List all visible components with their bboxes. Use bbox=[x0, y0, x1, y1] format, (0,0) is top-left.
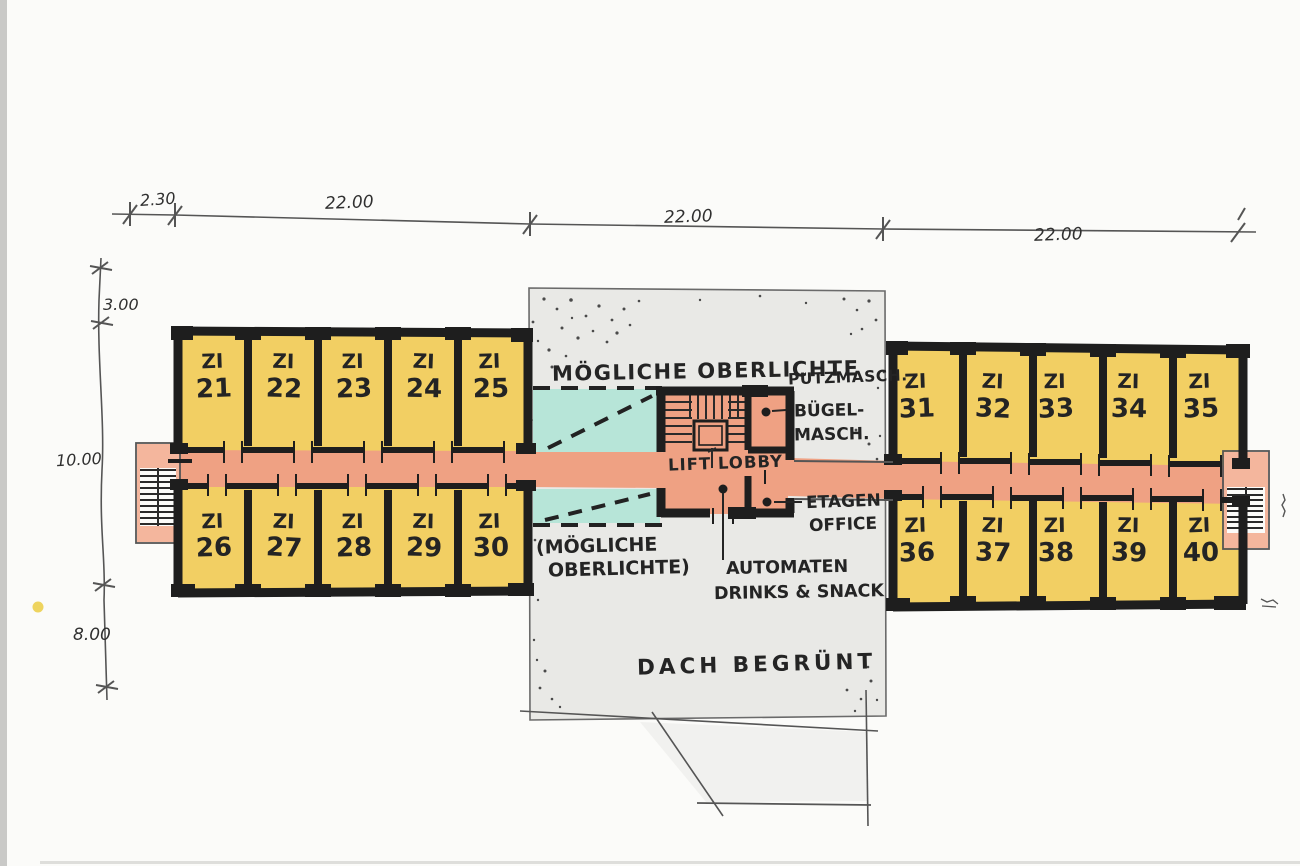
room-number: 36 bbox=[898, 537, 935, 568]
room-number: 29 bbox=[405, 532, 442, 563]
label-etagen-office-1: ETAGEN bbox=[806, 491, 881, 514]
room-number: 26 bbox=[195, 532, 232, 563]
yellow-mark bbox=[33, 602, 44, 613]
room-number: 27 bbox=[265, 532, 303, 564]
label-oberlichte-bottom-1: (MÖGLICHE bbox=[536, 532, 658, 559]
buegelmasch-leader bbox=[772, 410, 786, 411]
label-lift-lobby: LIFT LOBBY bbox=[668, 452, 784, 475]
room-prefix: ZI bbox=[272, 349, 294, 373]
etagen-office-dot bbox=[763, 498, 772, 507]
floor-plan-sketch: 2.30 22.00 22.00 22.00 3.00 10.00 8.00 Z… bbox=[0, 0, 1300, 866]
room-prefix: ZI bbox=[1117, 513, 1139, 537]
room-number: 28 bbox=[335, 532, 372, 563]
room-number: 35 bbox=[1182, 393, 1219, 424]
room-prefix: ZI bbox=[341, 509, 363, 533]
label-etagen-office-2: OFFICE bbox=[809, 514, 878, 536]
room-number: 38 bbox=[1038, 538, 1075, 569]
room-number: 30 bbox=[473, 533, 510, 564]
room-prefix: ZI bbox=[1043, 369, 1065, 393]
margin-scribble-2 bbox=[1261, 599, 1278, 607]
dim-2-30: 2.30 bbox=[139, 189, 176, 210]
floor-plan-page: 2.30 22.00 22.00 22.00 3.00 10.00 8.00 Z… bbox=[0, 0, 1300, 866]
label-automaten-2: DRINKS & SNACK bbox=[714, 581, 886, 604]
room-prefix: ZI bbox=[272, 509, 295, 534]
room-prefix: ZI bbox=[201, 349, 224, 374]
label-buegelmasch-2: MASCH. bbox=[794, 424, 870, 445]
buegelmasch-dot bbox=[762, 408, 771, 417]
automaten-dot bbox=[719, 485, 728, 494]
room-number: 39 bbox=[1110, 537, 1147, 568]
dim-3-00: 3.00 bbox=[103, 295, 139, 314]
room-number: 21 bbox=[195, 373, 232, 404]
room-number: 32 bbox=[974, 393, 1012, 425]
dim-22-00-c: 22.00 bbox=[1034, 224, 1083, 246]
room-prefix: ZI bbox=[478, 509, 501, 534]
room-prefix: ZI bbox=[1188, 369, 1211, 394]
room-number: 23 bbox=[335, 373, 372, 404]
room-number: 31 bbox=[898, 393, 935, 424]
room-number: 24 bbox=[406, 374, 443, 405]
room-number: 33 bbox=[1037, 393, 1075, 425]
room-prefix: ZI bbox=[412, 509, 434, 533]
room-number: 40 bbox=[1183, 538, 1220, 569]
room-number: 34 bbox=[1111, 394, 1148, 425]
margin-scribble bbox=[1282, 494, 1285, 517]
room-number: 25 bbox=[473, 374, 510, 405]
room-prefix: ZI bbox=[1117, 369, 1139, 393]
room-prefix: ZI bbox=[1188, 513, 1211, 538]
room-prefix: ZI bbox=[478, 349, 501, 374]
dim-22-00-b: 22.00 bbox=[664, 206, 713, 228]
dim-10-00: 10.00 bbox=[56, 449, 103, 470]
room-prefix: ZI bbox=[341, 349, 363, 373]
room-prefix: ZI bbox=[904, 513, 927, 538]
label-oberlichte-bottom-2: OBERLICHTE) bbox=[548, 556, 690, 582]
dim-22-00-a: 22.00 bbox=[325, 192, 374, 214]
room-prefix: ZI bbox=[981, 369, 1004, 394]
dim-8-00: 8.00 bbox=[73, 625, 111, 645]
room-prefix: ZI bbox=[1043, 513, 1065, 537]
room-prefix: ZI bbox=[201, 509, 224, 534]
room-number: 22 bbox=[265, 373, 302, 404]
label-buegelmasch-1: BÜGEL- bbox=[794, 398, 865, 421]
room-prefix: ZI bbox=[981, 513, 1004, 538]
room-number: 37 bbox=[974, 537, 1011, 568]
label-automaten-1: AUTOMATEN bbox=[726, 557, 849, 579]
room-prefix: ZI bbox=[412, 349, 435, 374]
